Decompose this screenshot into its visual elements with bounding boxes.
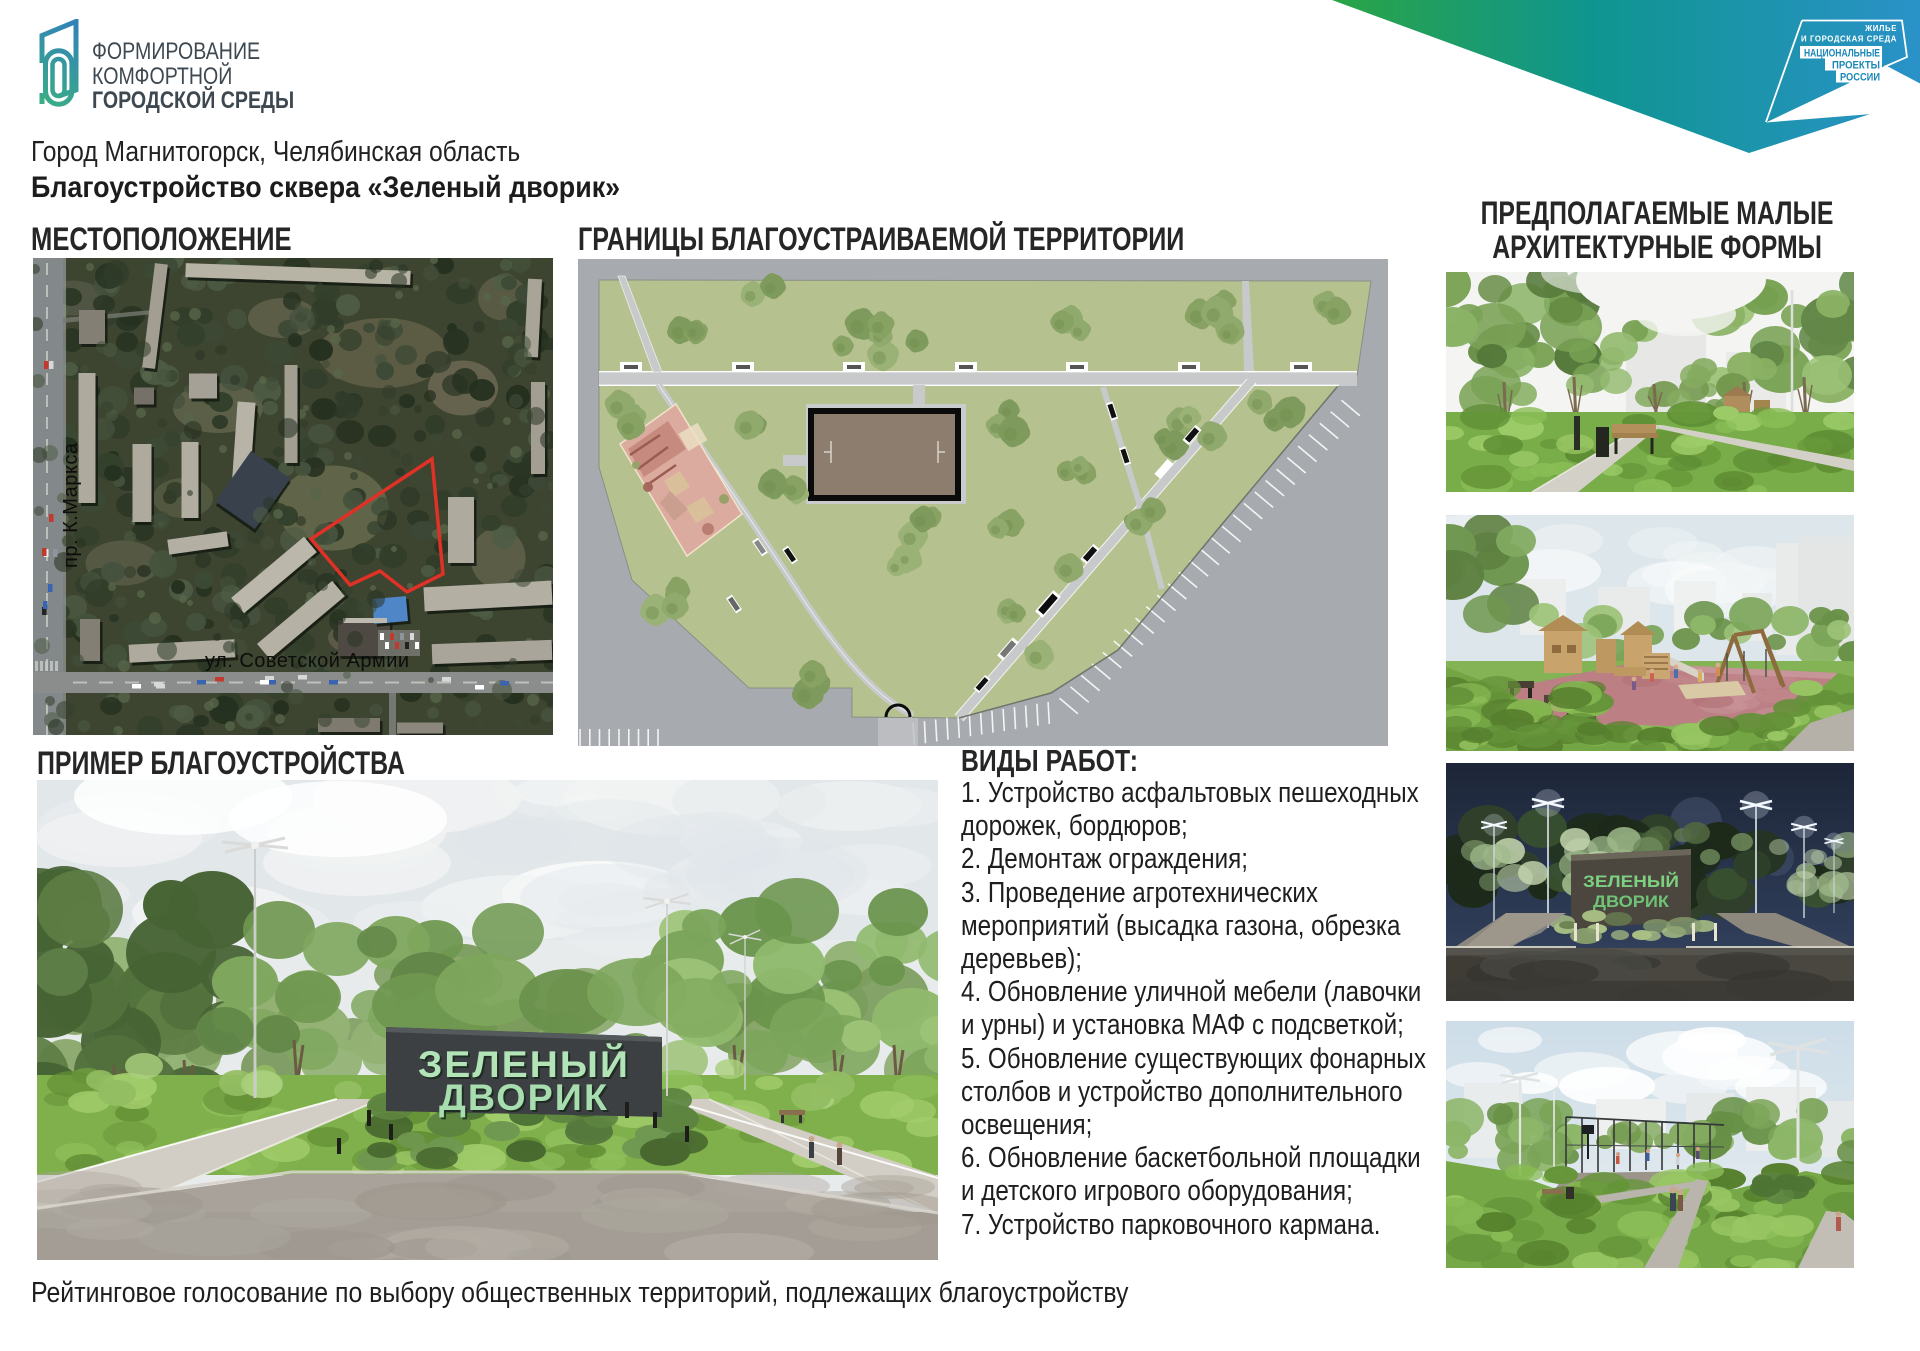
svg-text:ул. Советской Армии: ул. Советской Армии — [205, 650, 410, 672]
svg-text:ЗЕЛЕНЫЙ: ЗЕЛЕНЫЙ — [1583, 872, 1679, 891]
svg-text:И ГОРОДСКАЯ СРЕДА: И ГОРОДСКАЯ СРЕДА — [1801, 35, 1897, 44]
svg-text:ДВОРИК: ДВОРИК — [1593, 892, 1670, 911]
svg-text:ЖИЛЬЕ: ЖИЛЬЕ — [1864, 24, 1897, 33]
svg-text:ПРОЕКТЫ: ПРОЕКТЫ — [1832, 60, 1880, 72]
svg-text:пр. К.Маркса: пр. К.Маркса — [60, 442, 82, 568]
svg-text:РОССИИ: РОССИИ — [1840, 72, 1880, 84]
svg-text:НАЦИОНАЛЬНЫЕ: НАЦИОНАЛЬНЫЕ — [1804, 48, 1880, 60]
svg-text:ДВОРИК: ДВОРИК — [439, 1077, 609, 1118]
